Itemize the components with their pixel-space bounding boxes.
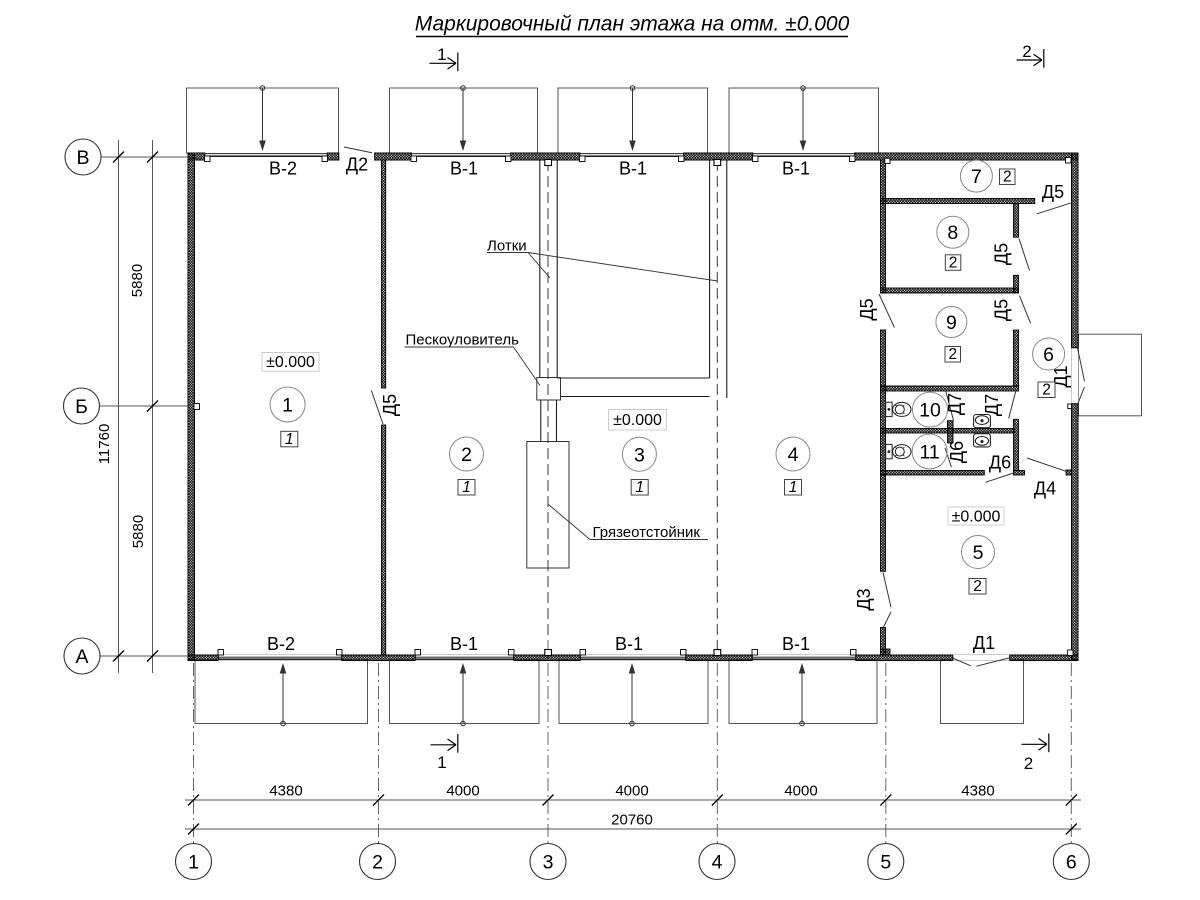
svg-text:2: 2 (949, 255, 958, 272)
svg-text:1: 1 (635, 479, 644, 496)
svg-text:Д6: Д6 (947, 441, 967, 463)
svg-text:В-1: В-1 (782, 634, 810, 654)
svg-text:Д1: Д1 (973, 633, 995, 653)
svg-text:Маркировочный план этажа на от: Маркировочный план этажа на отм. ±0.000 (415, 13, 850, 36)
svg-text:4000: 4000 (784, 783, 817, 800)
svg-text:7: 7 (971, 166, 982, 188)
svg-text:Д3: Д3 (854, 588, 874, 610)
svg-text:Д6: Д6 (989, 453, 1011, 473)
svg-text:11760: 11760 (96, 424, 113, 465)
svg-text:2: 2 (1042, 382, 1051, 399)
svg-text:2: 2 (973, 578, 982, 595)
svg-text:1: 1 (282, 395, 293, 417)
svg-text:1: 1 (188, 852, 199, 874)
svg-text:2: 2 (461, 444, 472, 466)
svg-text:Д2: Д2 (346, 155, 368, 175)
svg-text:6: 6 (1066, 852, 1077, 874)
svg-text:В-1: В-1 (450, 159, 478, 179)
svg-text:Д4: Д4 (1034, 479, 1056, 499)
svg-text:Грязеотстойник: Грязеотстойник (593, 524, 701, 541)
svg-text:1: 1 (789, 479, 798, 496)
svg-text:4000: 4000 (446, 783, 479, 800)
svg-text:В-1: В-1 (619, 159, 647, 179)
svg-text:В-1: В-1 (615, 634, 643, 654)
svg-text:1: 1 (437, 45, 446, 64)
svg-text:±0.000: ±0.000 (613, 412, 662, 429)
svg-text:Д5: Д5 (992, 243, 1012, 265)
svg-text:4380: 4380 (961, 783, 994, 800)
svg-text:9: 9 (946, 312, 957, 334)
svg-text:3: 3 (634, 444, 645, 466)
svg-text:В-1: В-1 (782, 159, 810, 179)
svg-text:2: 2 (372, 852, 383, 874)
svg-text:11: 11 (919, 442, 939, 464)
svg-text:В: В (76, 147, 89, 169)
svg-text:1: 1 (437, 753, 446, 772)
svg-text:Д5: Д5 (857, 298, 877, 320)
svg-text:В-2: В-2 (267, 634, 295, 654)
svg-text:Д5: Д5 (992, 299, 1012, 321)
svg-text:Д5: Д5 (1042, 182, 1064, 202)
svg-text:4: 4 (712, 852, 723, 874)
svg-text:2: 2 (948, 346, 957, 363)
svg-text:±0.000: ±0.000 (952, 509, 1001, 526)
svg-text:2: 2 (1022, 42, 1031, 61)
svg-text:3: 3 (543, 852, 554, 874)
svg-text:20760: 20760 (611, 812, 653, 829)
svg-text:Б: Б (75, 396, 88, 418)
svg-text:1: 1 (285, 431, 294, 448)
svg-text:В-2: В-2 (269, 159, 297, 179)
svg-text:±0.000: ±0.000 (266, 354, 315, 371)
svg-text:А: А (75, 646, 88, 668)
svg-text:8: 8 (947, 222, 958, 244)
svg-text:1: 1 (462, 479, 471, 496)
svg-text:10: 10 (919, 400, 941, 422)
svg-text:Пескоуловитель: Пескоуловитель (406, 332, 520, 349)
svg-text:Д7: Д7 (982, 394, 1002, 416)
svg-text:Лотки: Лотки (487, 238, 527, 255)
svg-text:5: 5 (880, 852, 891, 874)
svg-text:4380: 4380 (269, 783, 302, 800)
svg-text:5: 5 (973, 542, 984, 564)
svg-text:Д5: Д5 (380, 394, 400, 416)
svg-text:6: 6 (1043, 344, 1054, 366)
svg-text:4000: 4000 (615, 783, 648, 800)
svg-text:4: 4 (788, 444, 799, 466)
svg-text:5880: 5880 (129, 264, 146, 297)
svg-text:5880: 5880 (130, 515, 147, 548)
svg-text:2: 2 (1024, 754, 1033, 773)
svg-text:В-1: В-1 (450, 634, 478, 654)
svg-text:2: 2 (1003, 169, 1012, 186)
svg-text:Д7: Д7 (945, 393, 965, 415)
